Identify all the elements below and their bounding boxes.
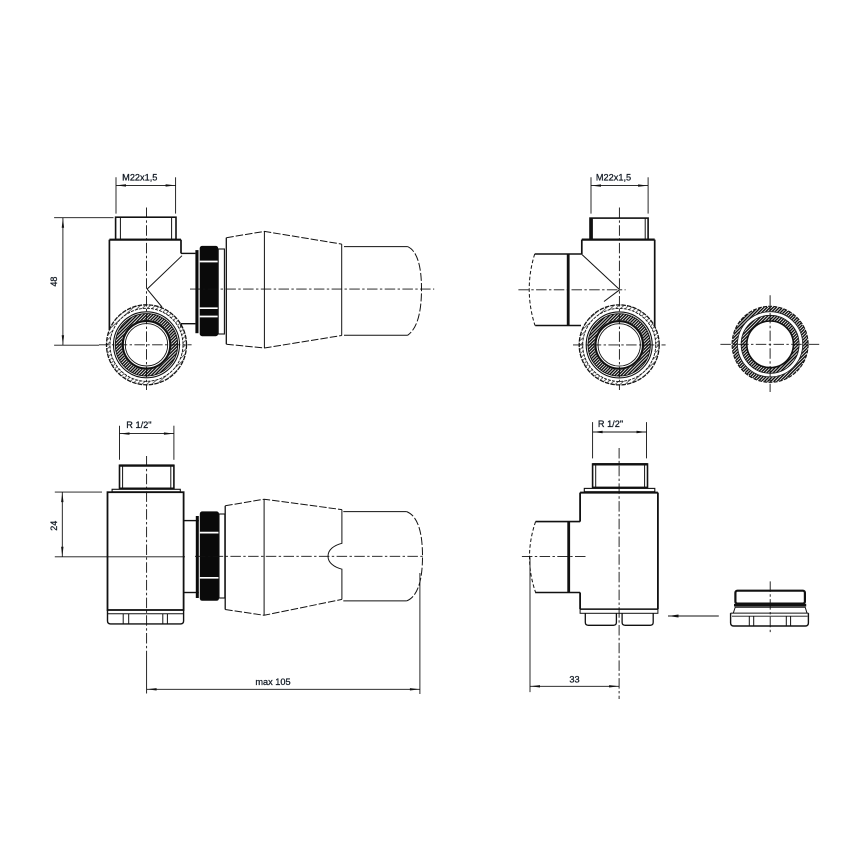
svg-text:R 1/2": R 1/2" xyxy=(126,420,151,430)
svg-text:R 1/2": R 1/2" xyxy=(598,419,623,429)
svg-text:24: 24 xyxy=(49,521,59,531)
svg-text:max 105: max 105 xyxy=(255,677,290,687)
svg-text:M22x1,5: M22x1,5 xyxy=(596,172,631,182)
svg-text:48: 48 xyxy=(49,277,59,287)
svg-text:33: 33 xyxy=(569,675,579,685)
svg-text:M22x1,5: M22x1,5 xyxy=(122,172,157,182)
